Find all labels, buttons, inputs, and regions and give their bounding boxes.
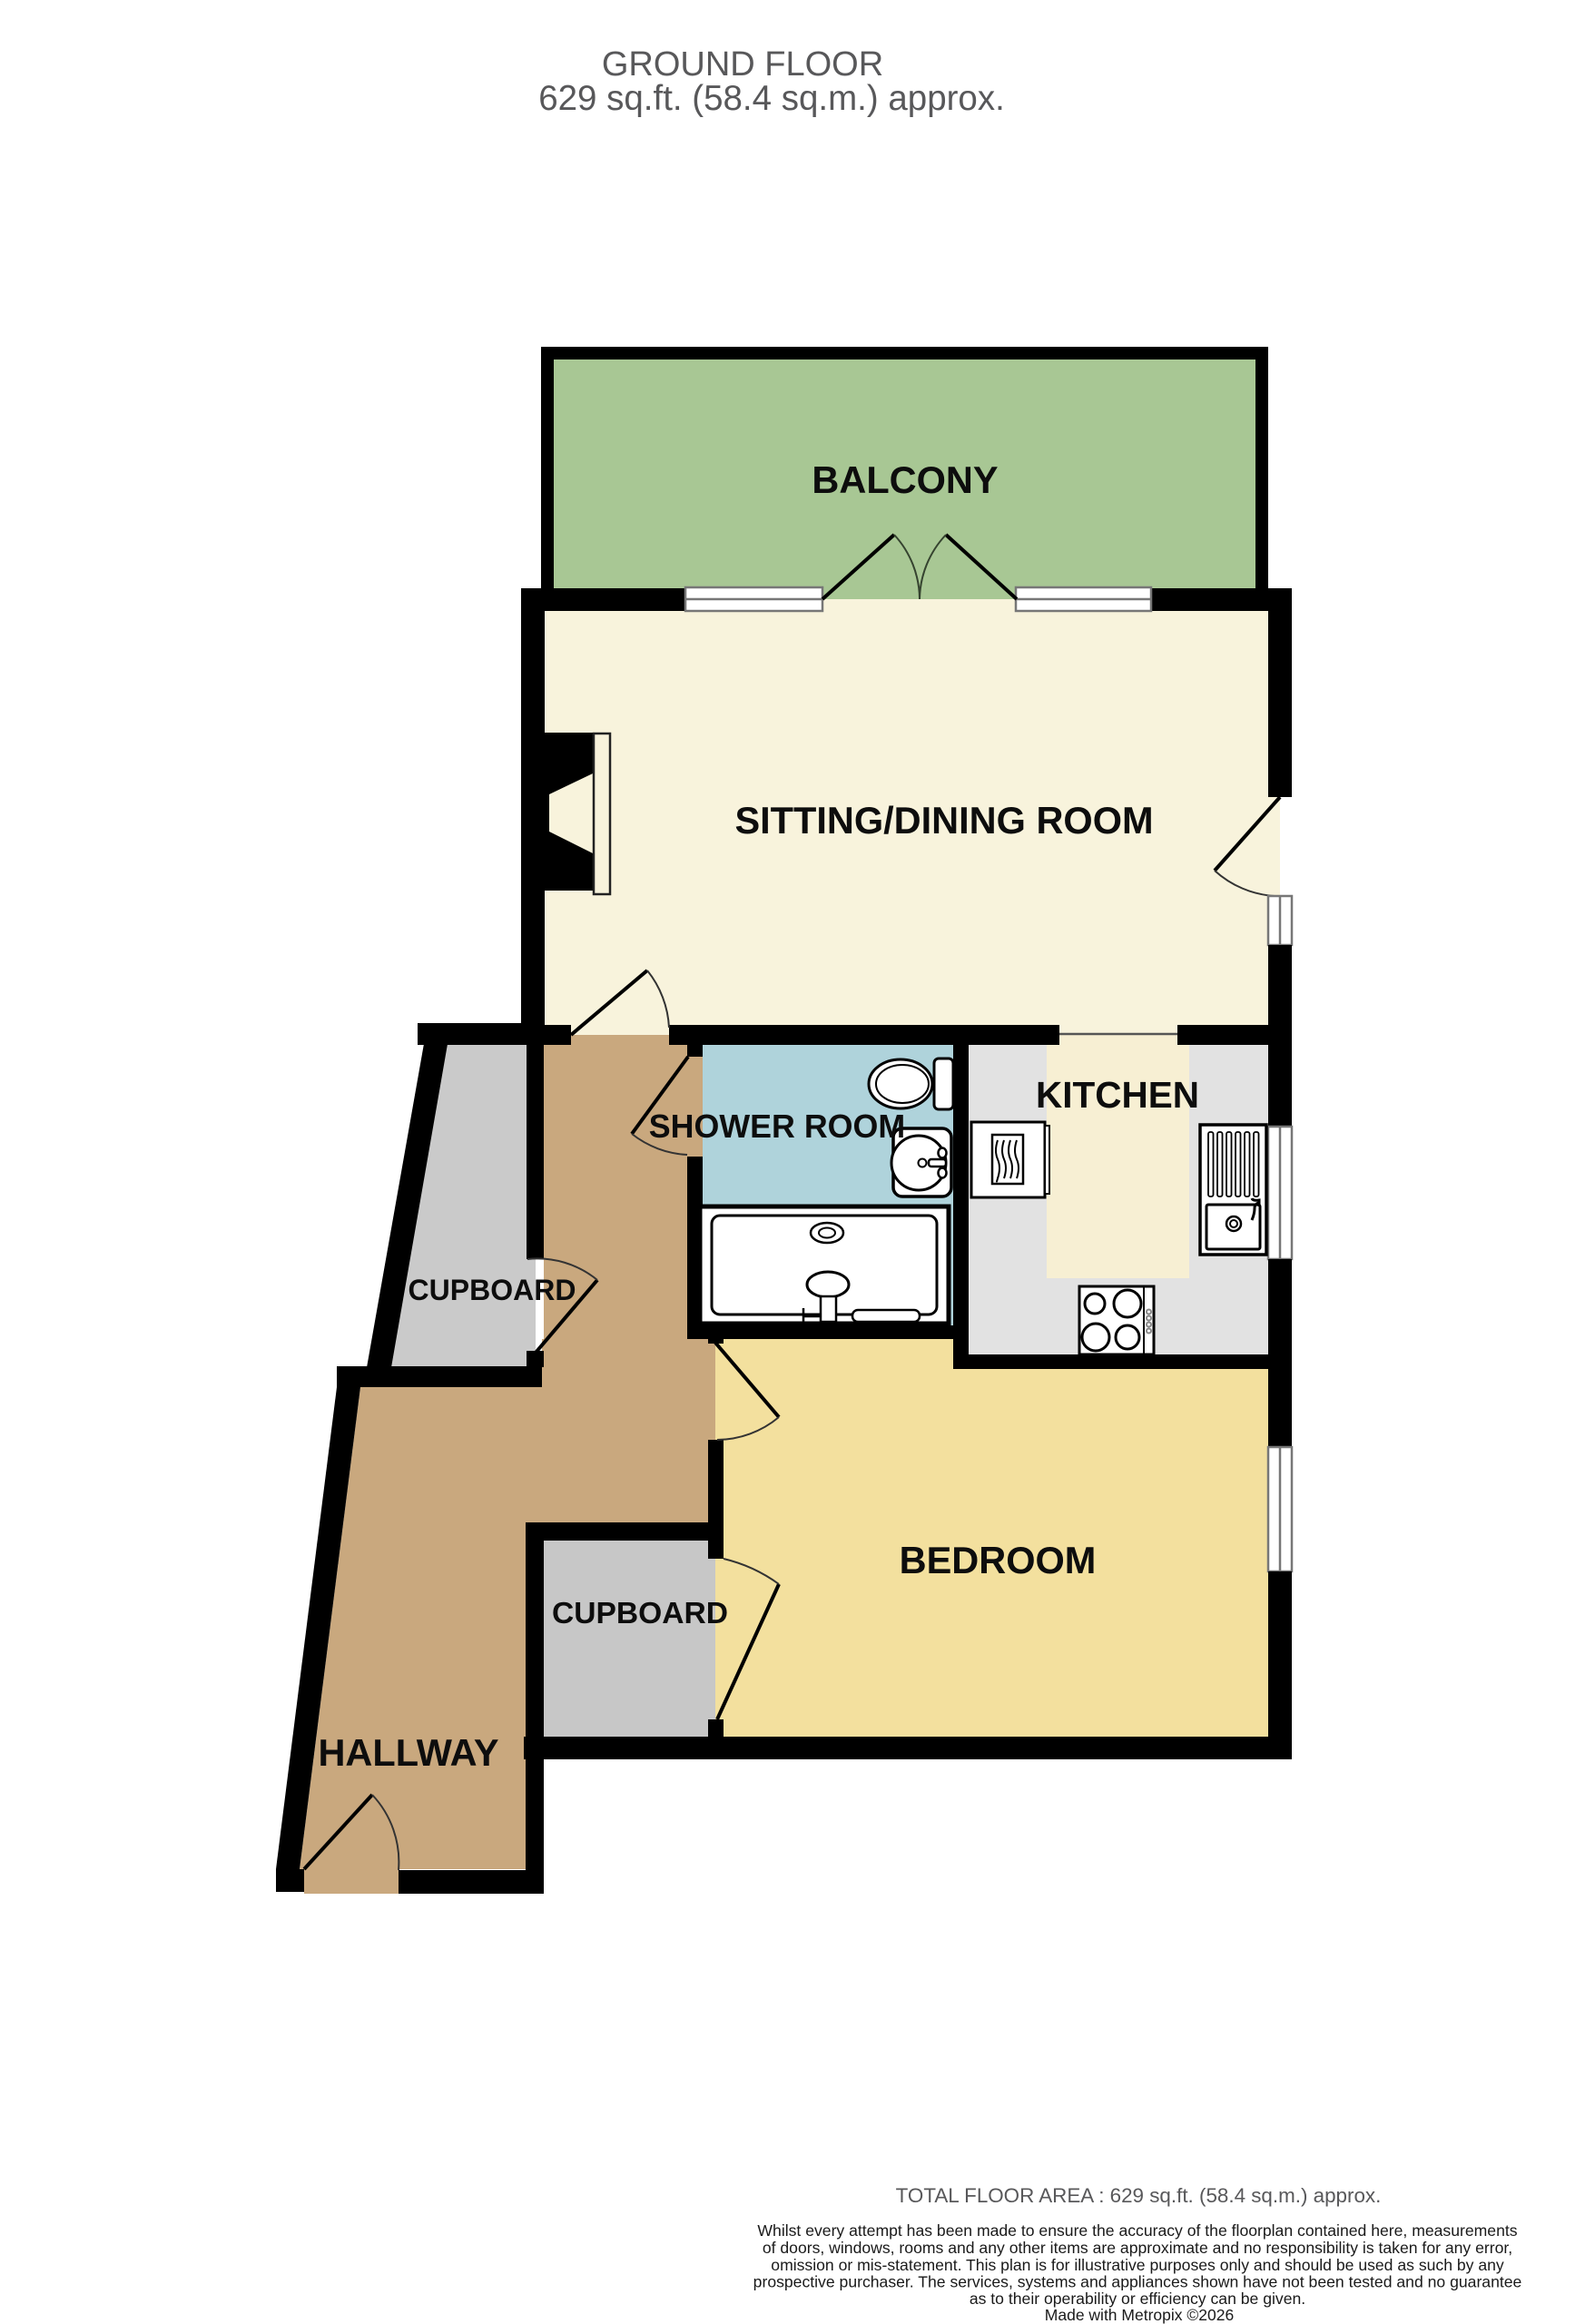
- svg-text:BALCONY: BALCONY: [812, 458, 999, 501]
- svg-text:Made with Metropix ©2026: Made with Metropix ©2026: [1045, 2306, 1234, 2324]
- svg-text:of doors, windows, rooms and a: of doors, windows, rooms and any other i…: [763, 2239, 1512, 2257]
- svg-text:KITCHEN: KITCHEN: [1036, 1074, 1199, 1116]
- svg-text:SITTING/DINING ROOM: SITTING/DINING ROOM: [734, 799, 1153, 842]
- svg-text:TOTAL FLOOR AREA : 629 sq.ft.: TOTAL FLOOR AREA : 629 sq.ft. (58.4 sq.m…: [896, 2184, 1382, 2207]
- svg-text:HALLWAY: HALLWAY: [318, 1731, 498, 1774]
- svg-text:as to their operability or eff: as to their operability or efficiency ca…: [970, 2290, 1305, 2308]
- svg-text:629 sq.ft. (58.4 sq.m.) approx: 629 sq.ft. (58.4 sq.m.) approx.: [538, 79, 1005, 118]
- svg-text:CUPBOARD: CUPBOARD: [409, 1274, 576, 1306]
- svg-text:BEDROOM: BEDROOM: [900, 1539, 1097, 1581]
- svg-text:Whilst every attempt has been: Whilst every attempt has been made to en…: [757, 2221, 1517, 2240]
- svg-text:SHOWER ROOM: SHOWER ROOM: [649, 1108, 905, 1145]
- svg-text:CUPBOARD: CUPBOARD: [552, 1597, 728, 1630]
- svg-text:prospective purchaser. The ser: prospective purchaser. The services, sys…: [753, 2273, 1522, 2291]
- svg-text:omission or mis-statement. Thi: omission or mis-statement. This plan is …: [771, 2256, 1504, 2274]
- svg-text:GROUND FLOOR: GROUND FLOOR: [602, 45, 883, 84]
